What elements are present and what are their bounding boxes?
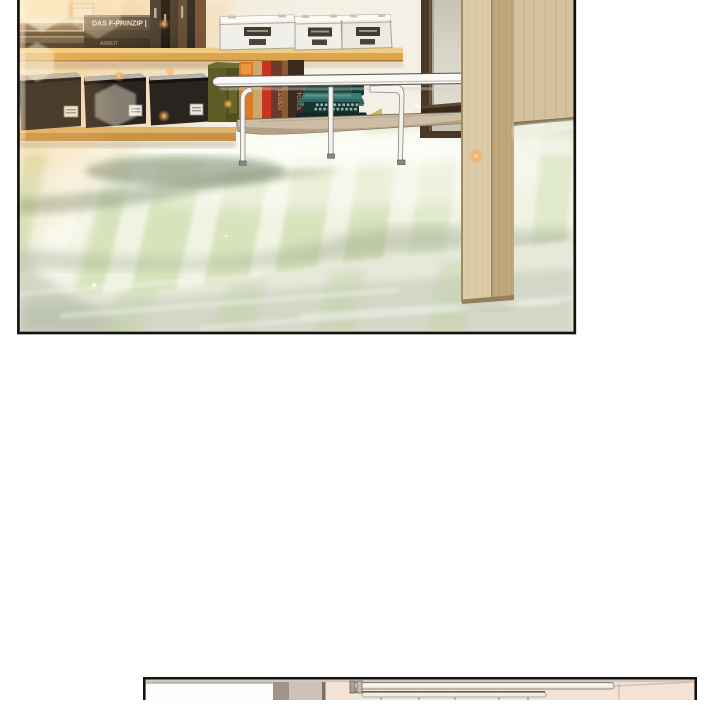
svg-text:LEIDEN: LEIDEN — [276, 90, 282, 110]
svg-text:TOVLS: TOVLS — [295, 92, 301, 110]
